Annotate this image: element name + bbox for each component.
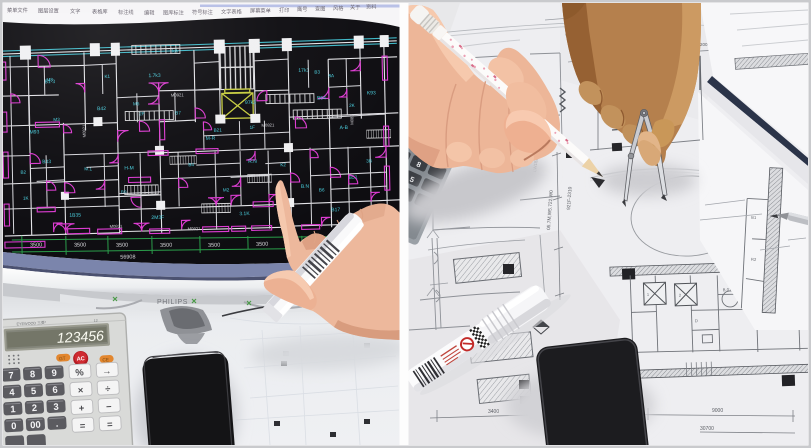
svg-text:R2: R2 xyxy=(751,257,757,262)
svg-text:CE: CE xyxy=(102,357,109,362)
svg-text:2: 2 xyxy=(32,402,38,413)
svg-text:9: 9 xyxy=(51,367,57,378)
svg-text:8: 8 xyxy=(30,368,36,379)
svg-text:AC: AC xyxy=(77,356,85,362)
svg-text:3: 3 xyxy=(53,401,59,412)
svg-text:PHILIPS: PHILIPS xyxy=(157,299,188,306)
svg-text:7: 7 xyxy=(8,369,14,380)
svg-text:B1: B1 xyxy=(751,215,757,220)
svg-text:3400: 3400 xyxy=(488,409,499,415)
svg-text:12: 12 xyxy=(94,319,98,323)
svg-text:00: 00 xyxy=(30,419,41,431)
svg-text:→: → xyxy=(102,365,112,377)
svg-text:GT: GT xyxy=(59,356,66,361)
svg-text:÷: ÷ xyxy=(105,383,111,394)
svg-text:0: 0 xyxy=(11,420,17,431)
svg-text:30700: 30700 xyxy=(700,426,714,432)
svg-text:菜单文件: 菜单文件 xyxy=(7,6,28,14)
svg-text:%: % xyxy=(75,366,85,377)
svg-text:5: 5 xyxy=(31,385,37,396)
svg-text:200: 200 xyxy=(700,42,708,47)
svg-text:6: 6 xyxy=(52,384,58,395)
svg-text:D: D xyxy=(695,318,698,323)
svg-text:1: 1 xyxy=(10,403,16,414)
svg-text:123456: 123456 xyxy=(56,327,104,346)
svg-text:9000: 9000 xyxy=(712,408,723,414)
